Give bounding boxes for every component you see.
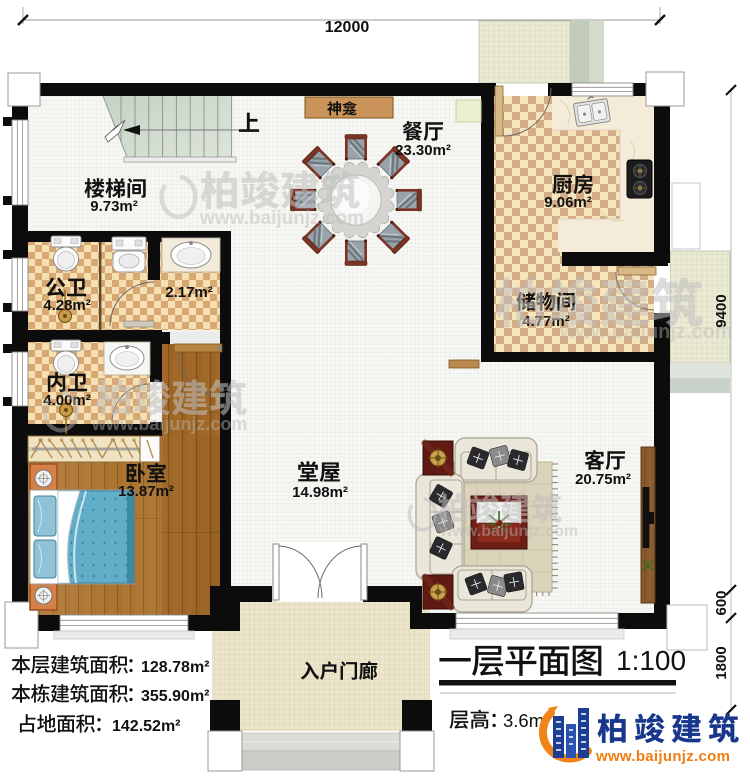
svg-text:20.75m²: 20.75m² (575, 471, 631, 488)
svg-text:www.baijunjz.com: www.baijunjz.com (439, 523, 578, 540)
svg-text:1:100: 1:100 (616, 645, 686, 676)
svg-text:www.baijunjz.com: www.baijunjz.com (559, 321, 733, 343)
svg-text:355.90m²: 355.90m² (141, 688, 210, 705)
svg-text:12000: 12000 (325, 19, 370, 36)
svg-text:www.baijunjz.com: www.baijunjz.com (91, 414, 247, 434)
svg-text:www.baijunjz.com: www.baijunjz.com (595, 748, 730, 765)
svg-text:1800: 1800 (713, 646, 730, 679)
svg-text:142.52m²: 142.52m² (112, 718, 181, 735)
svg-text:4.28m²: 4.28m² (43, 297, 91, 314)
svg-text:www.baijunjz.com: www.baijunjz.com (199, 208, 364, 229)
svg-text:3.6m: 3.6m (503, 710, 544, 731)
svg-text:9.06m²: 9.06m² (544, 194, 592, 211)
svg-text:600: 600 (713, 590, 730, 615)
svg-text:13.87m²: 13.87m² (118, 483, 174, 500)
svg-text:23.30m²: 23.30m² (395, 142, 451, 159)
svg-text:9.73m²: 9.73m² (90, 198, 138, 215)
svg-text:2.17m²: 2.17m² (165, 284, 213, 301)
svg-text:14.98m²: 14.98m² (292, 484, 348, 501)
svg-text:128.78m²: 128.78m² (141, 659, 210, 676)
